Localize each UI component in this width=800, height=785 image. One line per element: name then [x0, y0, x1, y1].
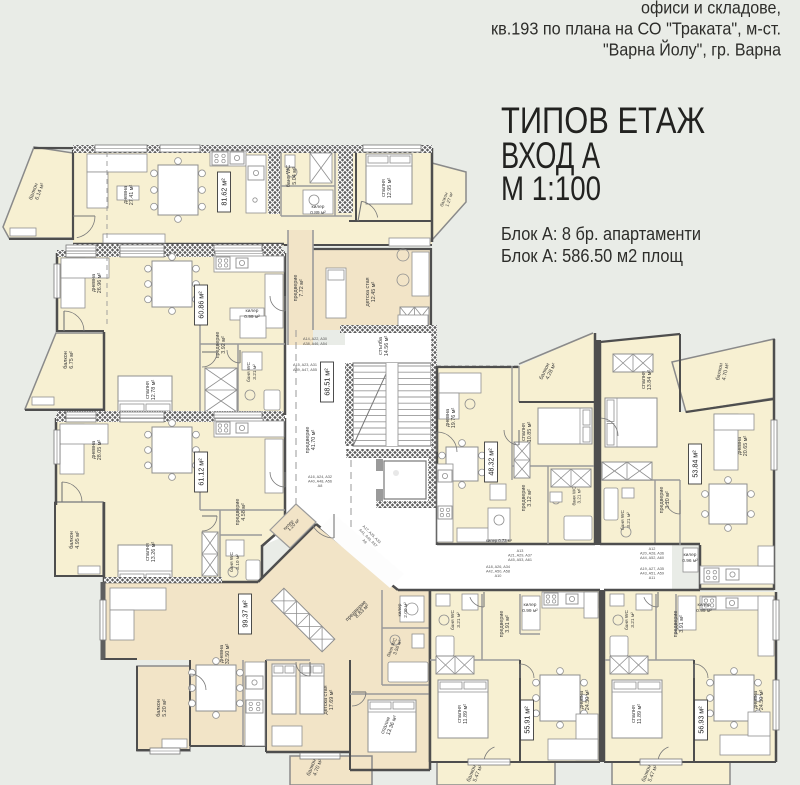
svg-text:48.32 м²: 48.32 м² [487, 448, 496, 476]
svg-text:дневна: дневна [753, 691, 759, 709]
svg-text:19.76 м²: 19.76 м² [451, 408, 457, 429]
svg-text:баня WC: баня WC [246, 362, 252, 382]
svg-text:"Варна Йолу", гр. Варна: "Варна Йолу", гр. Варна [603, 39, 781, 60]
svg-text:3.10 м²: 3.10 м² [235, 554, 241, 570]
svg-text:баня WC: баня WC [624, 610, 630, 630]
svg-text:Блок А: 8 бр. апартаменти: Блок А: 8 бр. апартаменти [501, 224, 701, 244]
svg-text:A42, A50, A58: A42, A50, A58 [486, 570, 510, 574]
svg-text:баня WC: баня WC [620, 510, 626, 530]
svg-text:0.99 м²: 0.99 м² [244, 314, 260, 320]
svg-text:24.50 м²: 24.50 м² [759, 690, 765, 711]
svg-text:дневна: дневна [737, 437, 743, 455]
svg-text:A20, A28, A36: A20, A28, A36 [640, 552, 664, 556]
svg-text:53.84 м²: 53.84 м² [691, 450, 700, 478]
svg-text:A13: A13 [517, 549, 524, 553]
svg-text:41.70 м²: 41.70 м² [311, 430, 317, 451]
svg-text:3.92 м²: 3.92 м² [221, 336, 227, 354]
svg-text:5.04 м²: 5.04 м² [292, 167, 298, 185]
svg-text:A18, A26, A34: A18, A26, A34 [486, 565, 510, 569]
svg-text:3.21 м²: 3.21 м² [577, 488, 582, 503]
svg-text:спалня: спалня [145, 543, 151, 561]
svg-text:A43, A51, A59: A43, A51, A59 [640, 572, 664, 576]
svg-text:10.85 м²: 10.85 м² [527, 422, 533, 443]
svg-text:предверие: предверие [499, 611, 505, 638]
svg-text:6.75 м²: 6.75 м² [69, 351, 75, 369]
svg-text:спалня: спалня [631, 705, 637, 723]
svg-text:баня WC: баня WC [229, 552, 235, 572]
svg-text:12.78 м²: 12.78 м² [151, 380, 157, 401]
svg-text:предверие: предверие [305, 427, 311, 454]
svg-text:спалня: спалня [381, 179, 387, 197]
svg-text:0.89 м²: 0.89 м² [310, 210, 326, 216]
svg-text:килер: килер [524, 603, 537, 608]
svg-text:13.26 м²: 13.26 м² [151, 542, 157, 563]
svg-text:24.50 м²: 24.50 м² [585, 690, 591, 711]
svg-text:килер: килер [246, 309, 259, 314]
svg-text:A44, A52, A60: A44, A52, A60 [640, 556, 664, 560]
svg-text:килер: килер [684, 553, 697, 558]
svg-text:13.84 м²: 13.84 м² [647, 370, 653, 391]
svg-text:A16, A24, A32: A16, A24, A32 [308, 475, 332, 479]
svg-text:A8: A8 [318, 484, 323, 488]
svg-text:12.95 м²: 12.95 м² [387, 178, 393, 199]
svg-text:килер: килер [398, 603, 403, 616]
svg-text:офиси и складове,: офиси и складове, [641, 0, 781, 18]
svg-text:32.50 м²: 32.50 м² [225, 644, 231, 665]
svg-text:0.99 м²: 0.99 м² [522, 608, 538, 614]
svg-text:A40, A48, A56: A40, A48, A56 [308, 480, 332, 484]
svg-text:детска стая: детска стая [365, 277, 371, 306]
svg-text:3.12 м²: 3.12 м² [527, 489, 533, 507]
svg-text:A45, A53, A61: A45, A53, A61 [508, 558, 532, 562]
svg-text:12.45 м²: 12.45 м² [371, 282, 377, 303]
svg-text:предверие: предверие [235, 499, 241, 526]
svg-text:81.62 м²: 81.62 м² [220, 178, 229, 206]
svg-text:3.91 м²: 3.91 м² [679, 615, 685, 633]
svg-text:килер: килер [698, 603, 711, 608]
svg-text:A39, A47, A55: A39, A47, A55 [293, 368, 317, 372]
svg-text:26.96 м²: 26.96 м² [97, 273, 103, 294]
svg-text:0.99 м²: 0.99 м² [696, 608, 712, 614]
svg-text:дневна: дневна [123, 186, 129, 204]
svg-text:99.37 м²: 99.37 м² [241, 600, 250, 628]
svg-text:4.58 м²: 4.58 м² [241, 503, 247, 521]
svg-text:A10: A10 [495, 574, 502, 578]
svg-text:Блок А: 586.50 м2 площ: Блок А: 586.50 м2 площ [501, 246, 683, 266]
svg-text:A21, A29, A37: A21, A29, A37 [508, 554, 532, 558]
svg-text:баня WC: баня WC [286, 165, 292, 187]
svg-text:балкон: балкон [69, 531, 75, 549]
svg-text:спалня: спалня [641, 371, 647, 389]
svg-text:предверие: предверие [215, 332, 221, 359]
svg-text:20.65 м²: 20.65 м² [743, 436, 749, 457]
svg-text:предверие: предверие [521, 485, 527, 512]
svg-text:A12: A12 [649, 547, 656, 551]
svg-text:11.89 м²: 11.89 м² [637, 704, 643, 724]
svg-text:2.00 м²: 2.00 м² [403, 602, 409, 618]
svg-text:14.56 м²: 14.56 м² [384, 336, 390, 357]
svg-text:балкон: балкон [63, 351, 69, 369]
svg-text:кв.193 по плана на СО "Траката: кв.193 по плана на СО "Траката", м-ст. [491, 19, 781, 39]
svg-text:дневна: дневна [445, 409, 451, 427]
svg-text:предверие: предверие [673, 611, 679, 638]
svg-text:М 1:100: М 1:100 [501, 170, 601, 208]
svg-text:стълба: стълба [378, 337, 384, 355]
svg-text:A19, A27, A35: A19, A27, A35 [640, 567, 664, 571]
svg-text:5.20 м²: 5.20 м² [162, 699, 168, 717]
svg-text:68.51 м²: 68.51 м² [323, 368, 332, 396]
svg-text:килер: килер [312, 205, 325, 210]
svg-text:спалня: спалня [521, 423, 527, 441]
svg-text:56.93 м²: 56.93 м² [697, 706, 706, 734]
svg-text:балкон: балкон [156, 699, 162, 717]
svg-text:спалня: спалня [145, 381, 151, 399]
svg-text:баня WC: баня WC [450, 610, 456, 630]
svg-text:11.89 м²: 11.89 м² [463, 704, 469, 724]
svg-text:28.05 м²: 28.05 м² [97, 440, 103, 461]
svg-text:3.21 м²: 3.21 м² [252, 364, 258, 380]
svg-text:0.96 м²: 0.96 м² [682, 558, 698, 564]
svg-text:спалня: спалня [457, 705, 463, 723]
svg-text:дневна: дневна [219, 645, 225, 663]
svg-text:27.41 м²: 27.41 м² [129, 185, 135, 206]
svg-text:55.91 м²: 55.91 м² [523, 706, 532, 734]
svg-text:A11: A11 [649, 576, 655, 580]
svg-text:3.91 м²: 3.91 м² [505, 615, 511, 633]
svg-text:дневна: дневна [91, 274, 97, 292]
svg-text:детска стая: детска стая [323, 685, 329, 714]
svg-text:4.95 м²: 4.95 м² [75, 531, 81, 549]
svg-text:17.69 м²: 17.69 м² [329, 690, 335, 711]
svg-text:A38, A46, A54: A38, A46, A54 [303, 342, 327, 346]
svg-text:A14, A22, A30: A14, A22, A30 [303, 337, 327, 341]
svg-text:3.10 м²: 3.10 м² [665, 491, 671, 509]
svg-text:килер 0.72 м²: килер 0.72 м² [486, 538, 513, 543]
svg-text:60.86 м²: 60.86 м² [197, 291, 206, 319]
svg-text:3.21 м²: 3.21 м² [626, 512, 632, 528]
svg-text:A15, A23, A31: A15, A23, A31 [293, 363, 317, 367]
svg-text:предверие: предверие [659, 487, 665, 514]
svg-text:3.21 м²: 3.21 м² [630, 612, 636, 628]
svg-text:7.72 м²: 7.72 м² [299, 279, 305, 297]
svg-text:61.12 м²: 61.12 м² [197, 458, 206, 486]
svg-text:3.21 м²: 3.21 м² [456, 612, 462, 628]
svg-text:дневна: дневна [579, 691, 585, 709]
svg-text:предверие: предверие [293, 275, 299, 302]
svg-text:дневна: дневна [91, 441, 97, 459]
